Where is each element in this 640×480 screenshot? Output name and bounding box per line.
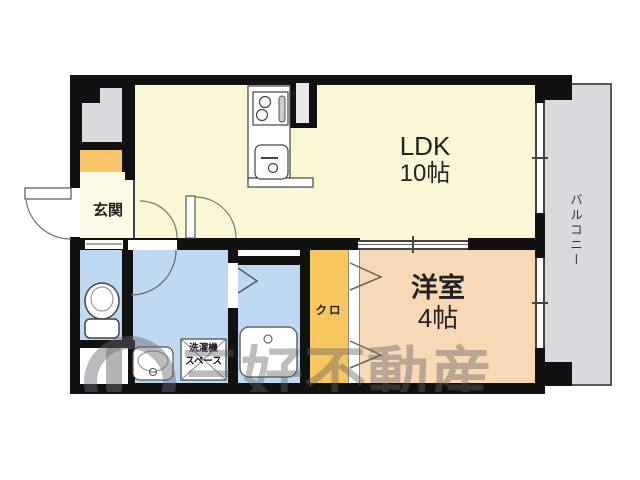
kitchen-counter: [248, 86, 313, 187]
washbasin-icon: [133, 347, 173, 380]
pipe-space: [82, 88, 122, 142]
closet-folding-doors: [350, 263, 381, 368]
toilet-icon: [85, 283, 119, 338]
laundry-line2: スペース: [181, 355, 226, 368]
bedroom-size: 4帖: [378, 303, 498, 333]
ldk-name: LDK: [365, 133, 485, 160]
laundry-space-label: 洗濯機 スペース: [181, 342, 226, 368]
kitchen-sink-icon: [255, 145, 288, 179]
ldk-size: 10帖: [365, 160, 485, 187]
bathroom-folding-door: [238, 268, 257, 293]
bedroom-label: 洋室 4帖: [378, 273, 498, 333]
entrance-door: [25, 188, 71, 239]
laundry-line1: 洗濯機: [181, 342, 226, 355]
balcony-label: バルコニー: [566, 193, 585, 303]
hall-door: [140, 196, 236, 238]
entrance-label: 玄関: [82, 199, 134, 220]
bathtub-icon: [240, 327, 297, 377]
stove-icon: [253, 92, 288, 125]
closet-label: クロ: [309, 302, 349, 318]
fixtures-layer: [0, 0, 640, 480]
bedroom-name: 洋室: [378, 273, 498, 303]
washroom-door-arc: [131, 250, 176, 295]
ldk-label: LDK 10帖: [365, 133, 485, 187]
floor-plan: LDK 10帖 洋室 4帖 玄関 クロ バルコニー 洗濯機 スペース 三好不動産: [0, 0, 640, 480]
